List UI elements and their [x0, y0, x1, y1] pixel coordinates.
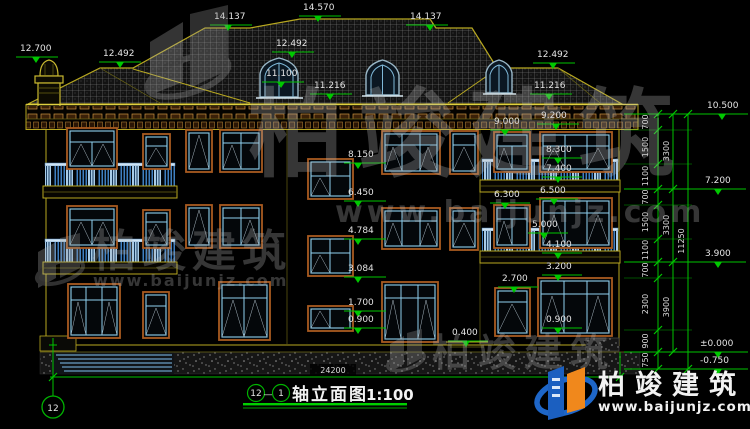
- svg-text:12.492: 12.492: [276, 39, 308, 49]
- window: [219, 282, 270, 340]
- title-axis-separator: —: [264, 390, 273, 400]
- level-flag: 3.084: [344, 264, 386, 283]
- drawing-scale: 1:100: [366, 386, 414, 404]
- drawing-title: 轴立面图: [292, 384, 368, 405]
- level-flag: 12.492: [533, 50, 575, 69]
- svg-text:1.700: 1.700: [348, 298, 374, 308]
- window: [68, 284, 120, 338]
- title-axis-to: 1: [278, 389, 284, 399]
- svg-text:14.137: 14.137: [410, 12, 442, 22]
- svg-text:12.492: 12.492: [103, 49, 135, 59]
- dim-segment: 700: [641, 262, 650, 277]
- dim-overall-width: 24200: [320, 366, 345, 375]
- svg-text:-0.750: -0.750: [700, 356, 729, 366]
- watermark-url: www.baijunjz.com: [93, 271, 288, 290]
- logo-tower-blue: [548, 366, 564, 420]
- dim-segment: 2300: [641, 294, 650, 314]
- watermark-left: 柏竣建筑 www.baijunjz.com: [34, 226, 292, 290]
- svg-text:11.100: 11.100: [266, 69, 298, 79]
- svg-text:4.100: 4.100: [546, 240, 572, 250]
- logo-tower-orange: [567, 367, 585, 413]
- svg-text:12.492: 12.492: [537, 50, 569, 60]
- window: [67, 128, 117, 169]
- axis-bubble-label: 12: [47, 404, 58, 414]
- window: [186, 130, 212, 172]
- svg-text:14.570: 14.570: [303, 3, 335, 13]
- cad-elevation-screenshot: 12 12.700 12.492 14.137 14.570 14.137 12…: [0, 0, 750, 429]
- chimney: [35, 60, 63, 108]
- window: [143, 292, 169, 338]
- svg-text:0.900: 0.900: [348, 315, 374, 325]
- watermark-brand: 柏竣建筑: [92, 226, 292, 277]
- level-flag: 12.492: [99, 49, 141, 68]
- svg-text:0.900: 0.900: [546, 315, 572, 325]
- stair-window: [308, 306, 353, 331]
- svg-text:3.200: 3.200: [546, 262, 572, 272]
- dim-segment: 1100: [641, 240, 650, 260]
- svg-text:12.700: 12.700: [20, 44, 52, 54]
- title-block: 12 — 1 轴立面图 1:100: [243, 384, 414, 409]
- logo-brand-text: 柏竣建筑: [598, 369, 746, 401]
- window: [538, 278, 612, 336]
- window: [495, 288, 530, 336]
- level-flag: 10.500: [707, 101, 739, 120]
- title-axis-from: 12: [250, 389, 261, 399]
- svg-text:10.500: 10.500: [707, 101, 739, 111]
- logo-url-text: www.baijunjz.com: [598, 399, 750, 415]
- dim-total: 3900: [662, 297, 671, 317]
- level-flag: 7.200: [705, 176, 731, 195]
- dim-segment: 900: [641, 333, 650, 348]
- stair-window: [308, 236, 353, 276]
- level-flag: 12.700: [16, 44, 58, 63]
- dim-segment: 750: [641, 352, 650, 367]
- logo-swoosh: [533, 372, 600, 421]
- dim-overall-height: 11250: [677, 228, 686, 253]
- svg-text:7.200: 7.200: [705, 176, 731, 186]
- watermark-brand: 柏竣建筑: [248, 79, 688, 191]
- watermark-url: www.baijunjz.com: [335, 195, 705, 230]
- level-flag: 3.900: [705, 249, 731, 268]
- svg-text:±0.000: ±0.000: [700, 339, 734, 349]
- svg-text:3.084: 3.084: [348, 264, 374, 274]
- svg-text:3.900: 3.900: [705, 249, 731, 259]
- svg-text:2.700: 2.700: [502, 274, 528, 284]
- window: [143, 134, 170, 169]
- watermark-brand: 柏竣建筑: [432, 331, 616, 375]
